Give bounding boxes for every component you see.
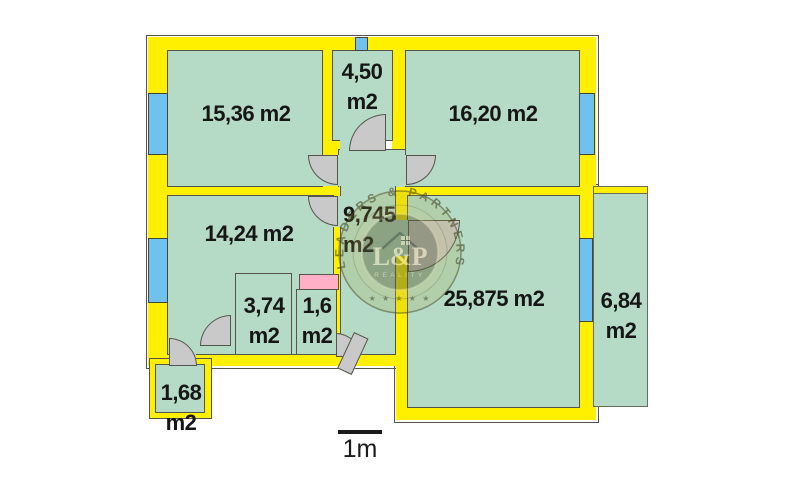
wall-divider-450-1620 <box>392 37 406 155</box>
window-right-upper <box>579 93 595 155</box>
room-16-20-label: 16,20 m2 <box>408 99 578 129</box>
balcony-6-84-label: 6,84 m2 <box>593 286 649 346</box>
wall-top <box>148 37 596 51</box>
wall-bottom-right <box>396 407 594 420</box>
scale-label: 1m <box>330 435 390 464</box>
window-right-lower <box>579 238 593 322</box>
room-3-74-label: 3,74 m2 <box>236 291 292 351</box>
balcony-1-68-label: 1,68 m2 <box>150 378 212 438</box>
window-left-upper <box>148 93 168 155</box>
watermark-seal: LEADERS & PARTNERS L&P REALITY ★ ★ ★ ★ ★ <box>330 182 470 322</box>
wall-left <box>148 37 168 366</box>
floor-plan: 15,36 m2 4,50 m2 16,20 m2 9,745 m2 14,24… <box>0 0 800 500</box>
room-15-36-label: 15,36 m2 <box>170 99 322 129</box>
room-14-24-label: 14,24 m2 <box>170 219 328 249</box>
scale-bar <box>338 430 382 434</box>
window-left-lower <box>148 238 168 303</box>
watermark-monogram: L&P <box>373 242 428 271</box>
watermark-subtitle: REALITY <box>374 272 426 279</box>
window-top <box>355 37 368 51</box>
watermark-stars: ★ ★ ★ ★ ★ <box>369 294 432 303</box>
room-4-50-label: 4,50 m2 <box>331 57 393 117</box>
